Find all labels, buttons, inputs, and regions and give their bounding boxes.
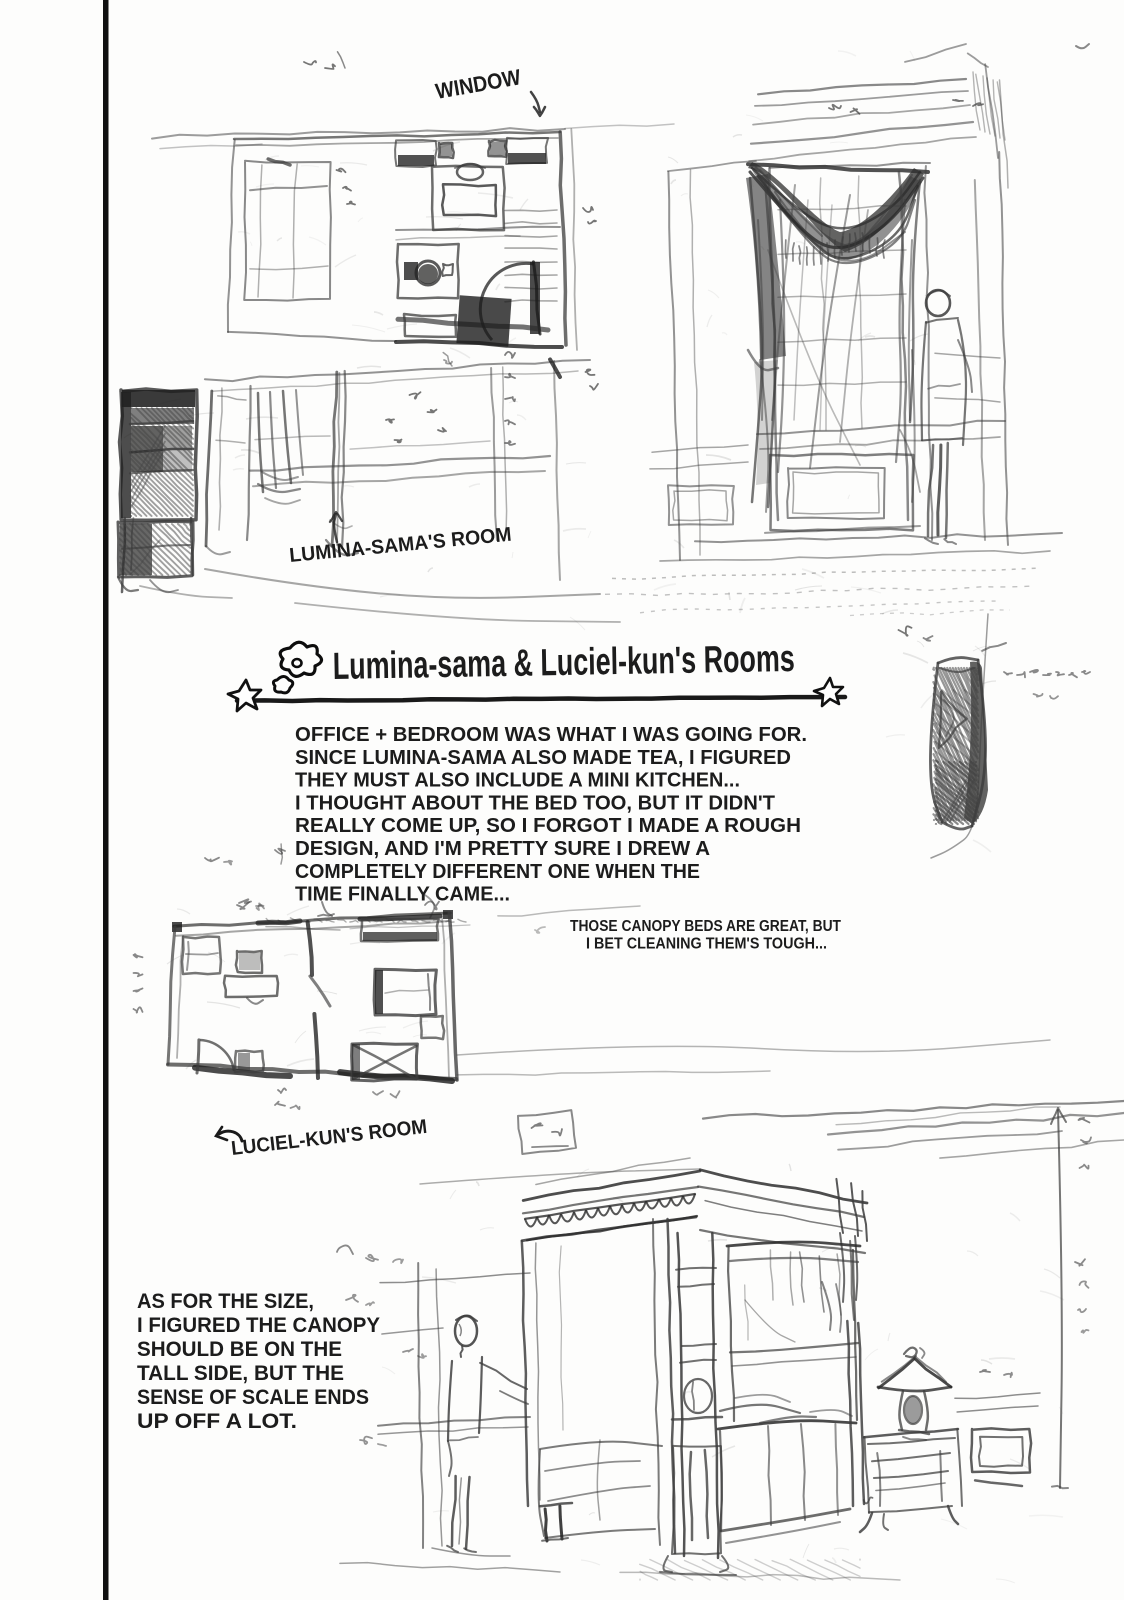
svg-text:OFFICE + BEDROOM WAS WHAT I WA: OFFICE + BEDROOM WAS WHAT I WAS GOING FO… [295, 723, 807, 746]
svg-text:SHOULD BE ON THE: SHOULD BE ON THE [137, 1338, 342, 1361]
svg-text:TALL SIDE, BUT THE: TALL SIDE, BUT THE [137, 1362, 344, 1385]
svg-text:UP OFF A LOT.: UP OFF A LOT. [137, 1410, 297, 1433]
svg-text:SENSE OF SCALE ENDS: SENSE OF SCALE ENDS [137, 1386, 369, 1409]
svg-text:I THOUGHT ABOUT THE BED TOO, B: I THOUGHT ABOUT THE BED TOO, BUT IT DIDN… [295, 791, 775, 814]
svg-text:I FIGURED THE CANOPY: I FIGURED THE CANOPY [137, 1314, 380, 1337]
svg-text:SINCE LUMINA-SAMA ALSO MADE TE: SINCE LUMINA-SAMA ALSO MADE TEA, I FIGUR… [295, 746, 791, 769]
svg-text:DESIGN, AND I'M PRETTY SURE I: DESIGN, AND I'M PRETTY SURE I DREW A [295, 837, 710, 860]
svg-text:REALLY COME UP, SO I FORGOT I: REALLY COME UP, SO I FORGOT I MADE A ROU… [295, 814, 801, 837]
svg-text:AS FOR THE SIZE,: AS FOR THE SIZE, [137, 1290, 314, 1313]
svg-text:I BET CLEANING THEM'S TOUGH...: I BET CLEANING THEM'S TOUGH... [586, 936, 827, 953]
svg-text:THOSE CANOPY BEDS ARE GREAT, B: THOSE CANOPY BEDS ARE GREAT, BUT [570, 918, 841, 935]
svg-text:COMPLETELY DIFFERENT ONE WHEN: COMPLETELY DIFFERENT ONE WHEN THE [295, 860, 700, 883]
svg-text:TIME FINALLY CAME...: TIME FINALLY CAME... [295, 883, 510, 906]
svg-text:Lumina-sama & Luciel-kun's Roo: Lumina-sama & Luciel-kun's Rooms [332, 638, 795, 688]
svg-text:THEY MUST ALSO INCLUDE A MINI: THEY MUST ALSO INCLUDE A MINI KITCHEN... [295, 769, 740, 792]
